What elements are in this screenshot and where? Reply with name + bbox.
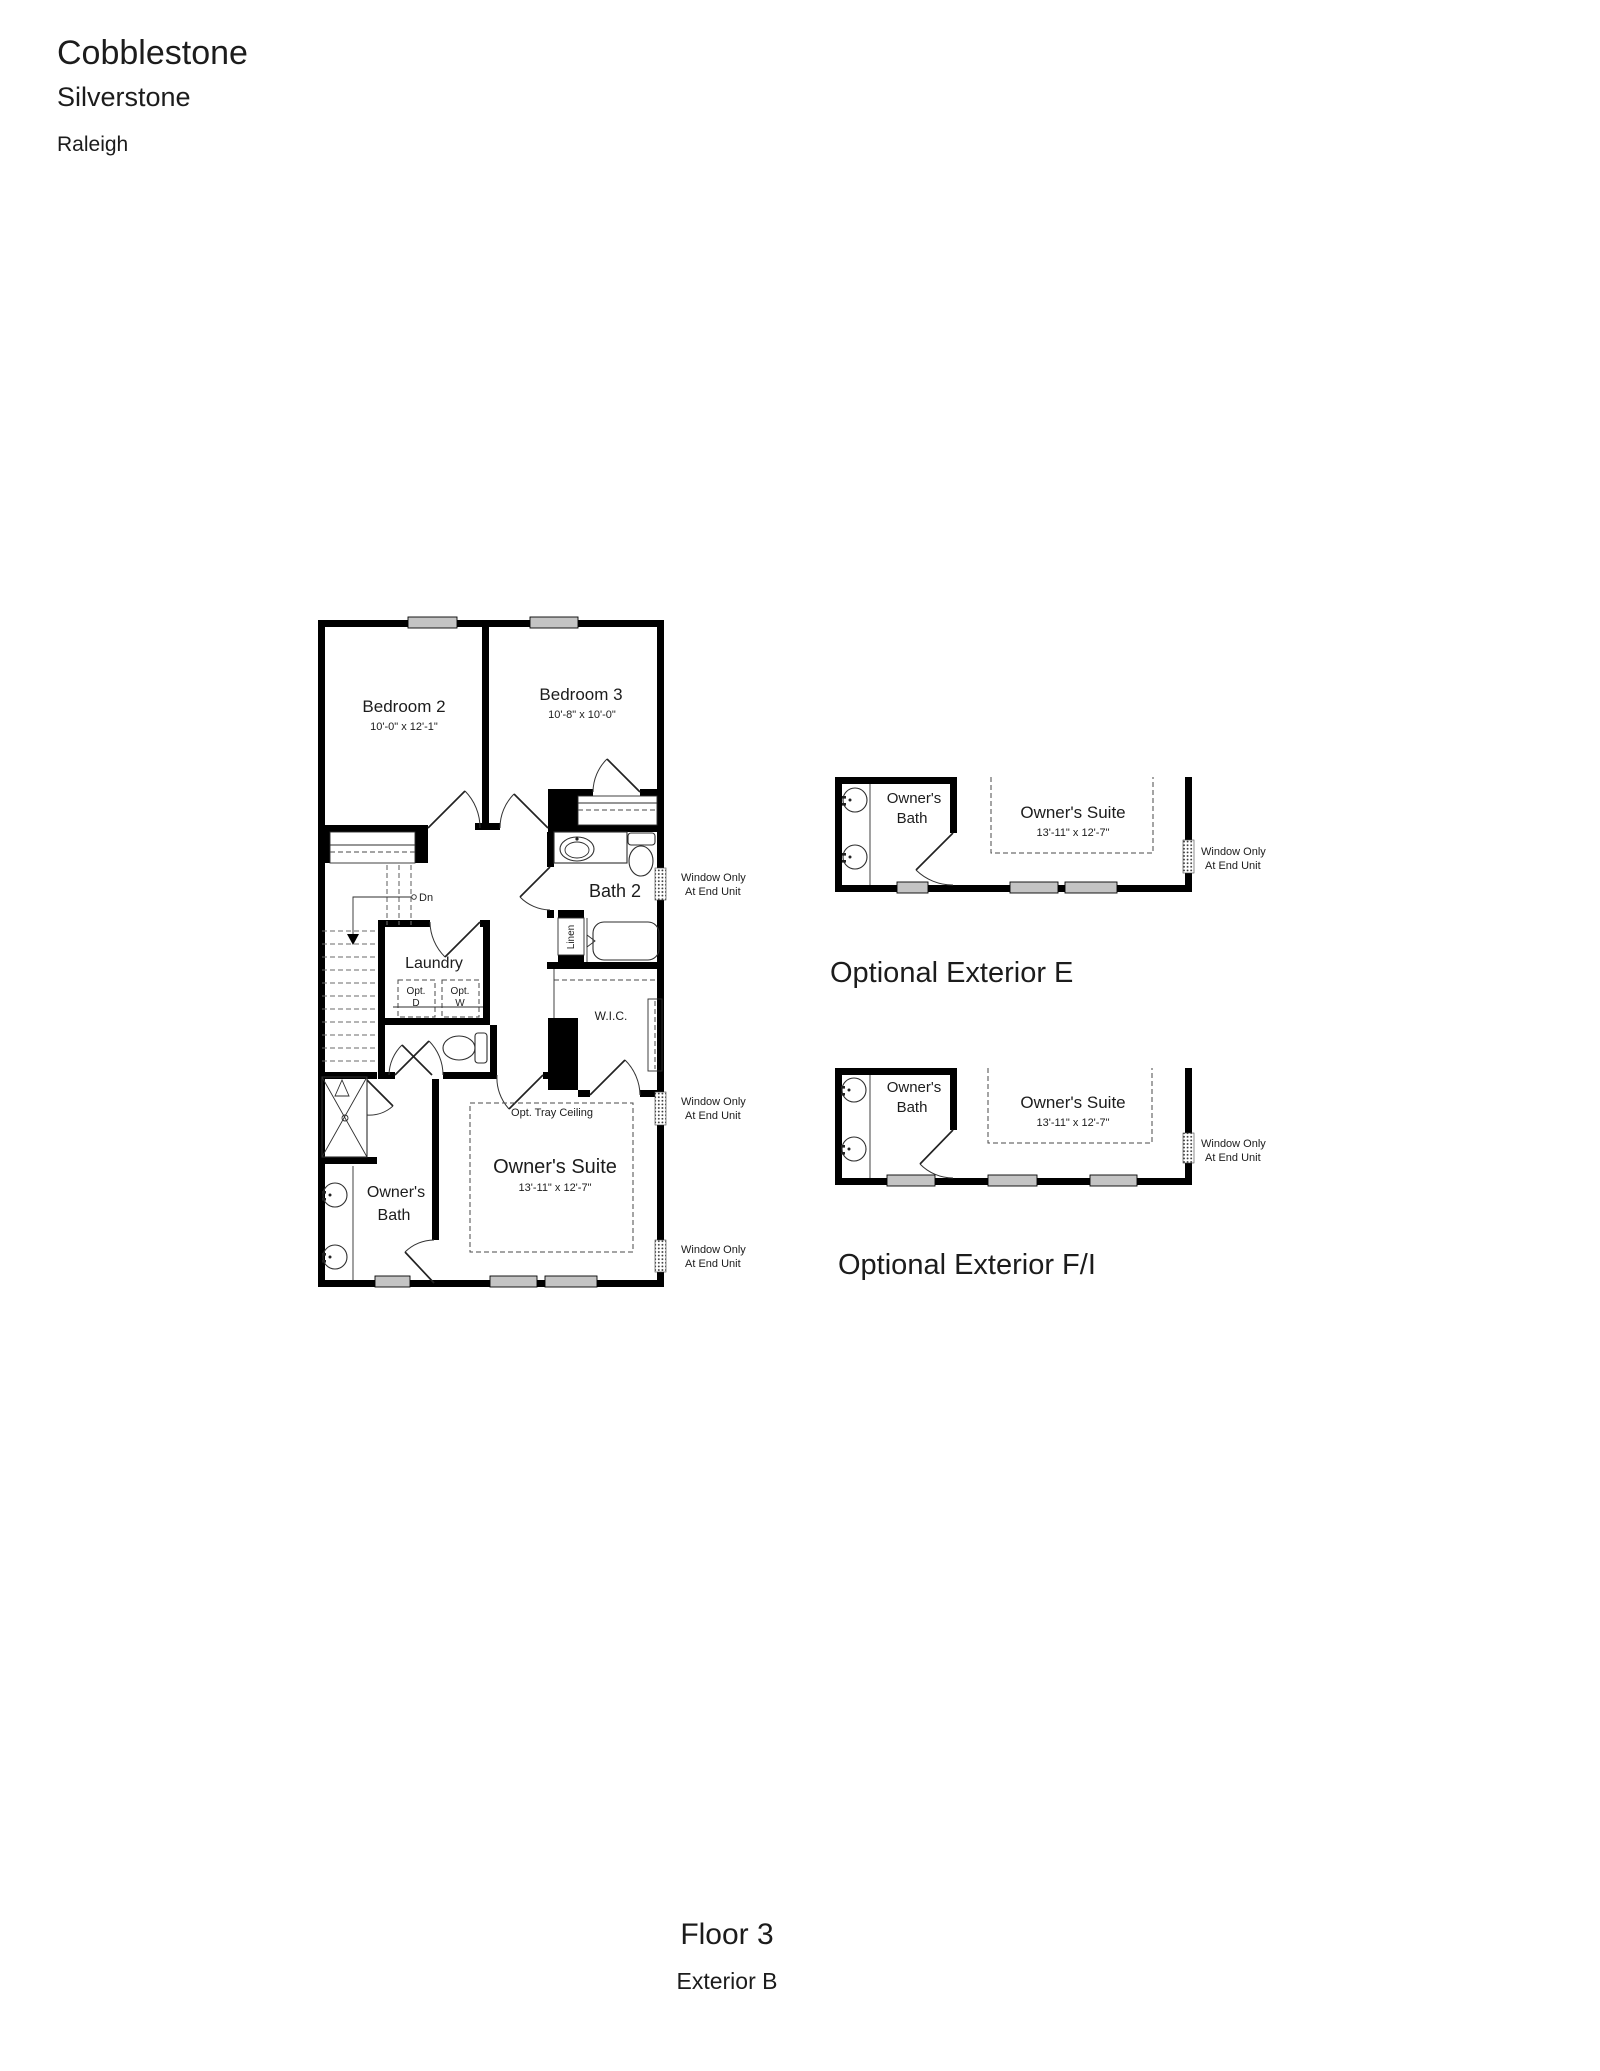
window-note-bath2: Window Only At End Unit <box>681 872 746 898</box>
bedroom2-closet <box>330 832 415 863</box>
opt-washer-label: Opt. <box>451 986 470 997</box>
bath2-fixtures <box>554 832 655 876</box>
owners-bath-label2: Bath <box>897 810 928 827</box>
owners-suite-dims: 13'-11" x 12'-7" <box>1037 1117 1110 1129</box>
owners-bath-fixtures <box>841 1075 870 1178</box>
bath2-door <box>520 867 550 910</box>
svg-text:At End Unit: At End Unit <box>685 1258 741 1270</box>
wic-door <box>590 1060 640 1095</box>
bath2-label: Bath 2 <box>589 881 641 901</box>
sink <box>842 845 867 869</box>
tray-ceiling-label: Opt. Tray Ceiling <box>511 1107 593 1119</box>
sink <box>841 1078 866 1102</box>
svg-text:Window Only: Window Only <box>681 1096 746 1108</box>
opt-washer-letter: W <box>455 998 465 1009</box>
stairs-down-label: Dn <box>419 892 433 904</box>
svg-text:At End Unit: At End Unit <box>685 1110 741 1122</box>
window-only-hatch <box>1183 840 1194 873</box>
bedroom2-label: Bedroom 2 <box>362 697 445 716</box>
window-only-hatch <box>1183 1133 1194 1163</box>
owners-bath-label2: Bath <box>897 1099 928 1116</box>
city-name: Raleigh <box>57 134 248 155</box>
svg-text:Window Only: Window Only <box>681 1244 746 1256</box>
owners-bath-sink <box>322 1245 347 1269</box>
laundry-door <box>430 922 480 957</box>
sink <box>841 1137 866 1161</box>
title-block: Cobblestone Silverstone Raleigh <box>57 36 248 155</box>
owners-suite-dims: 13'-11" x 12'-7" <box>1037 827 1110 839</box>
owners-suite-label: Owner's Suite <box>493 1156 617 1178</box>
window-note: Window Only At End Unit <box>1201 1138 1266 1164</box>
floor-plan-sheet: Cobblestone Silverstone Raleigh <box>0 0 1600 2071</box>
tub <box>587 918 659 962</box>
svg-text:At End Unit: At End Unit <box>1205 860 1261 872</box>
laundry-label: Laundry <box>405 955 463 972</box>
bedroom3-label: Bedroom 3 <box>539 685 622 704</box>
bedroom2-dims: 10'-0" x 12'-1" <box>370 721 438 733</box>
owners-suite-dims: 13'-11" x 12'-7" <box>519 1182 592 1194</box>
owners-bath-label2: Bath <box>378 1207 411 1224</box>
linen-label: Linen <box>566 925 577 949</box>
optional-exterior-fi-plan: Owner's Bath Owner's Suite 13'-11" x 12'… <box>833 1063 1303 1190</box>
bedroom2-door <box>428 791 480 828</box>
bath-door <box>920 1130 953 1178</box>
window-note-suite-upper: Window Only At End Unit <box>681 1096 746 1122</box>
windows <box>887 1175 1137 1186</box>
owners-suite-label: Owner's Suite <box>1020 1093 1125 1112</box>
optional-exterior-fi-caption: Optional Exterior F/I <box>838 1249 1096 1282</box>
bedroom3-dims: 10'-8" x 10'-0" <box>548 709 616 721</box>
optional-exterior-e-caption: Optional Exterior E <box>830 957 1073 990</box>
water-closet-toilet <box>443 1033 487 1063</box>
bath2-toilet-tank <box>628 833 655 845</box>
bedroom3-door <box>500 794 548 828</box>
shower-door <box>367 1080 393 1115</box>
owners-suite-label: Owner's Suite <box>1020 803 1125 822</box>
stairs <box>322 865 416 1061</box>
floor-label: Floor 3 <box>577 1918 877 1952</box>
sheet-footer: Floor 3 Exterior B <box>577 1918 877 1995</box>
down-marker <box>412 895 417 900</box>
svg-text:At End Unit: At End Unit <box>685 886 741 898</box>
opt-dryer-letter: D <box>412 998 419 1009</box>
bath-door <box>916 833 953 885</box>
opt-dryer-label: Opt. <box>407 986 426 997</box>
community-name: Silverstone <box>57 84 248 111</box>
sink <box>842 788 867 812</box>
plan-name: Cobblestone <box>57 36 248 70</box>
owners-bath-sink <box>322 1183 347 1207</box>
owners-bath-label: Owner's <box>887 790 942 807</box>
owners-bath-fixtures <box>842 784 870 885</box>
svg-text:Window Only: Window Only <box>681 872 746 884</box>
exterior-label: Exterior B <box>577 1968 877 1995</box>
shower-head <box>335 1080 349 1096</box>
window-note: Window Only At End Unit <box>1201 846 1266 872</box>
svg-text:Window Only: Window Only <box>1201 1138 1266 1150</box>
down-arrow-head <box>347 934 359 945</box>
owners-bath-label: Owner's <box>367 1184 425 1201</box>
wic-label: W.I.C. <box>595 1009 628 1023</box>
svg-text:Window Only: Window Only <box>1201 846 1266 858</box>
bedroom3-closet-door <box>593 759 640 792</box>
main-floor-plan: Bedroom 2 10'-0" x 12'-1" Bedroom 3 10'-… <box>315 613 775 1291</box>
suite-entry-door <box>497 1075 543 1109</box>
owners-bath-label: Owner's <box>887 1079 942 1096</box>
optional-exterior-e-plan: Owner's Bath Owner's Suite 13'-11" x 12'… <box>833 775 1303 900</box>
bath2-toilet-bowl <box>629 846 653 876</box>
svg-text:At End Unit: At End Unit <box>1205 1152 1261 1164</box>
stair-railing <box>387 865 411 925</box>
bedroom3-closet <box>578 796 657 825</box>
owners-bath-fixtures <box>322 1077 367 1280</box>
window-note-suite-lower: Window Only At End Unit <box>681 1244 746 1270</box>
